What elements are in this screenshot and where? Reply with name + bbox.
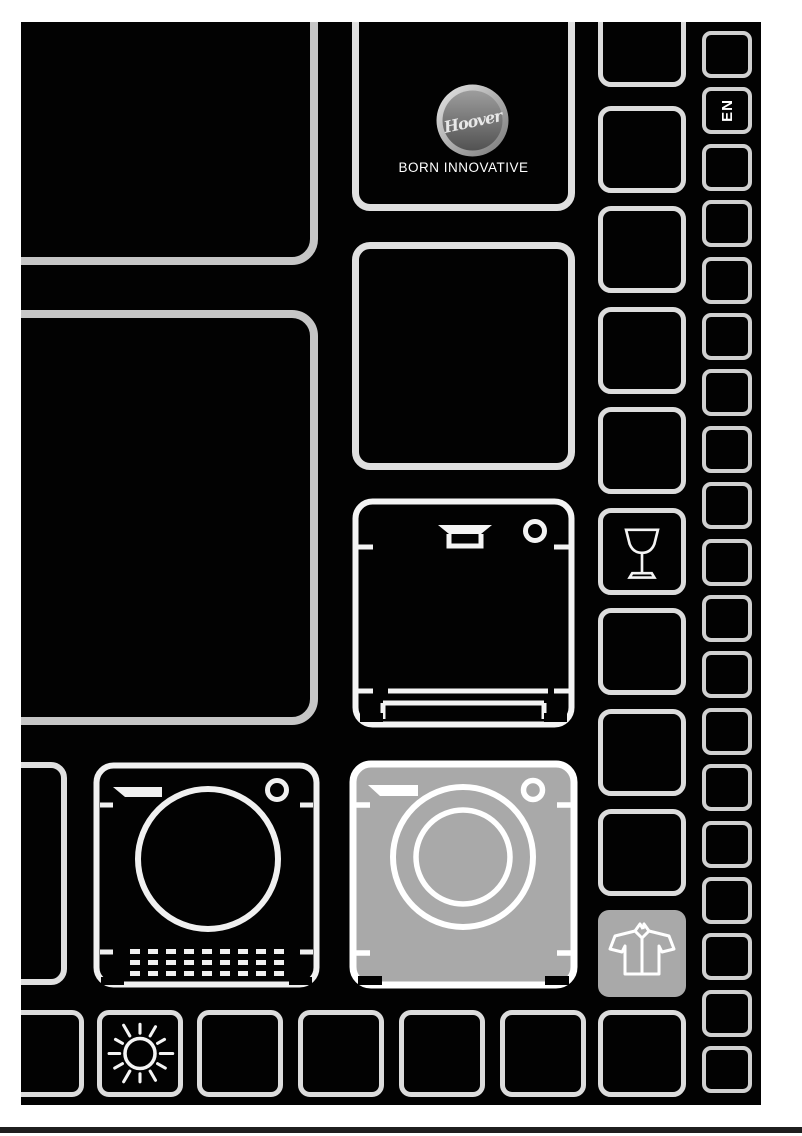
language-label: EN bbox=[719, 99, 736, 122]
language-tab: EN bbox=[702, 87, 752, 134]
sun-cell bbox=[97, 1010, 183, 1097]
dishwasher-cell bbox=[352, 498, 575, 728]
shirt-cell bbox=[598, 910, 686, 997]
grid-cell-a bbox=[598, 809, 686, 896]
grid-cell-a bbox=[598, 22, 686, 87]
grid-cell-b bbox=[702, 482, 752, 529]
wine-glass-cell bbox=[598, 508, 686, 595]
tumble-dryer-cell bbox=[93, 762, 320, 988]
grid-cell-b bbox=[702, 1046, 752, 1093]
washing-machine-cell bbox=[349, 760, 578, 989]
hoover-logo-icon: Hoover bbox=[436, 84, 509, 157]
grid-cell-left-clipped bbox=[21, 762, 67, 985]
grid-cell-b bbox=[702, 990, 752, 1037]
grid-cell-b bbox=[702, 426, 752, 473]
grid-cell-b bbox=[702, 539, 752, 586]
tumble-dryer-icon bbox=[93, 762, 320, 988]
grid-cell-a bbox=[598, 307, 686, 394]
dishwasher-icon bbox=[352, 498, 575, 728]
grid-cell-a bbox=[598, 206, 686, 293]
washing-machine-icon bbox=[349, 760, 578, 989]
grid-cell-bottom bbox=[298, 1010, 384, 1097]
grid-cell-b bbox=[702, 877, 752, 924]
panel-left-large bbox=[21, 310, 318, 725]
grid-cell-bottom-clipped bbox=[21, 1010, 84, 1097]
manual-cover-page: Hoover BORN INNOVATIVE bbox=[0, 0, 802, 1136]
grid-cell-b bbox=[702, 764, 752, 811]
shirt-icon bbox=[598, 910, 686, 997]
grid-cell-b bbox=[702, 369, 752, 416]
grid-cell-b bbox=[702, 651, 752, 698]
grid-cell-mid-empty bbox=[352, 242, 575, 470]
grid-cell-bottom bbox=[500, 1010, 586, 1097]
grid-cell-b bbox=[702, 200, 752, 247]
grid-cell-a bbox=[598, 1010, 686, 1097]
grid-cell-b bbox=[702, 144, 752, 191]
logo-panel: Hoover BORN INNOVATIVE bbox=[352, 22, 575, 211]
grid-cell-a bbox=[598, 608, 686, 695]
grid-cell-a bbox=[598, 407, 686, 494]
cover-grid-canvas: Hoover BORN INNOVATIVE bbox=[21, 22, 761, 1105]
grid-cell-a bbox=[598, 106, 686, 193]
sun-icon bbox=[102, 1015, 178, 1092]
panel-top-left bbox=[21, 22, 318, 265]
grid-cell-bottom bbox=[399, 1010, 485, 1097]
grid-cell-a bbox=[598, 709, 686, 796]
grid-cell-b bbox=[702, 933, 752, 980]
brand-tagline: BORN INNOVATIVE bbox=[359, 160, 568, 175]
grid-cell-b bbox=[702, 31, 752, 78]
grid-cell-b bbox=[702, 821, 752, 868]
grid-cell-b bbox=[702, 595, 752, 642]
wine-glass-icon bbox=[603, 513, 681, 590]
grid-cell-b bbox=[702, 708, 752, 755]
grid-cell-b bbox=[702, 313, 752, 360]
footer-rule bbox=[0, 1127, 802, 1133]
grid-cell-b bbox=[702, 257, 752, 304]
grid-cell-bottom bbox=[197, 1010, 283, 1097]
